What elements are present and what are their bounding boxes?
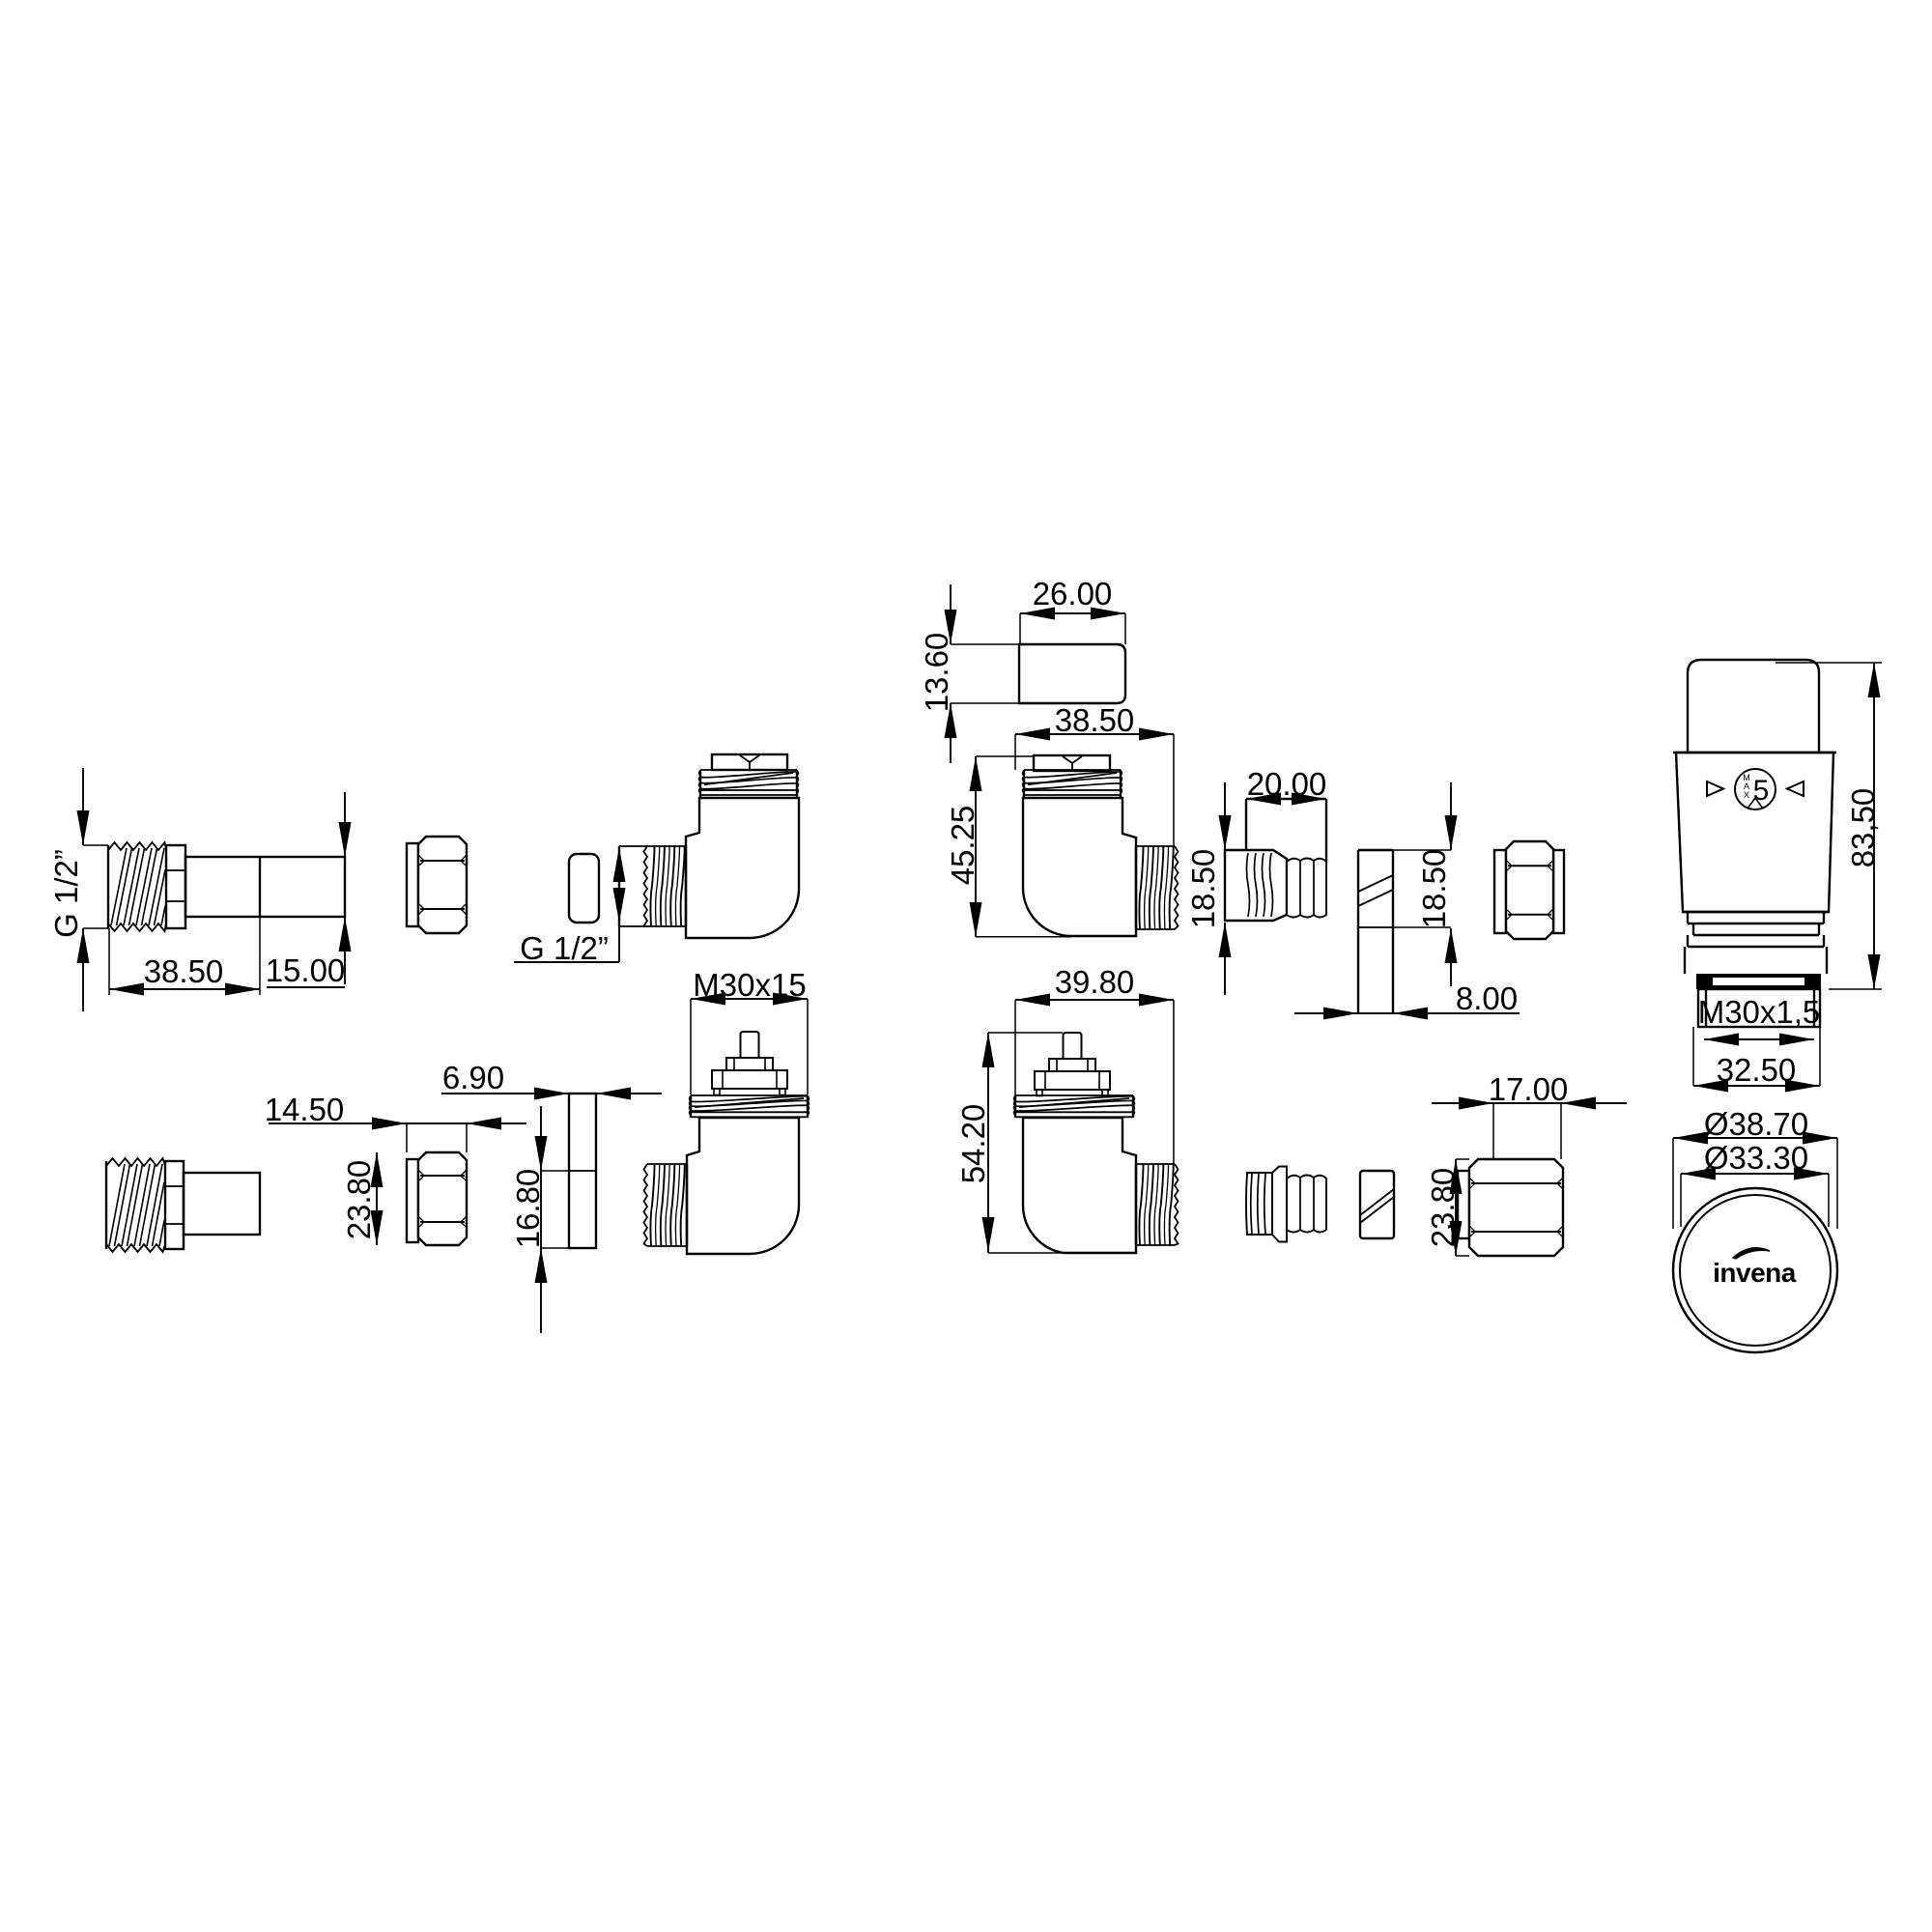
svg-text:15.00: 15.00 (266, 952, 346, 988)
svg-text:5: 5 (1753, 775, 1770, 807)
svg-text:13.60: 13.60 (919, 633, 954, 713)
svg-text:32.50: 32.50 (1717, 1052, 1797, 1088)
svg-text:Ø38.70: Ø38.70 (1704, 1106, 1808, 1142)
svg-text:38.50: 38.50 (144, 953, 224, 989)
svg-text:8.00: 8.00 (1456, 980, 1518, 1016)
svg-text:18.50: 18.50 (1416, 849, 1452, 929)
svg-text:14.50: 14.50 (265, 1092, 345, 1127)
svg-text:6.90: 6.90 (442, 1060, 504, 1095)
svg-text:45.25: 45.25 (945, 806, 980, 886)
svg-text:20.00: 20.00 (1247, 766, 1327, 802)
svg-text:16.80: 16.80 (510, 1169, 546, 1249)
svg-text:G 1/2”: G 1/2” (520, 930, 609, 966)
svg-text:23.80: 23.80 (1425, 1168, 1461, 1248)
svg-text:18.50: 18.50 (1185, 849, 1221, 929)
svg-text:83,50: 83,50 (1845, 788, 1881, 868)
svg-text:54.20: 54.20 (955, 1104, 991, 1184)
svg-text:26.00: 26.00 (1033, 576, 1113, 611)
svg-text:39.80: 39.80 (1055, 964, 1135, 1000)
svg-text:G 1/2”: G 1/2” (48, 849, 84, 938)
svg-text:invena: invena (1713, 1258, 1797, 1288)
svg-text:M30x1,5: M30x1,5 (1698, 994, 1821, 1030)
svg-text:23.80: 23.80 (341, 1160, 377, 1240)
svg-text:38.50: 38.50 (1055, 702, 1135, 738)
svg-text:Ø33.30: Ø33.30 (1704, 1140, 1808, 1176)
svg-text:17.00: 17.00 (1489, 1071, 1569, 1107)
svg-text:X: X (1744, 790, 1749, 800)
